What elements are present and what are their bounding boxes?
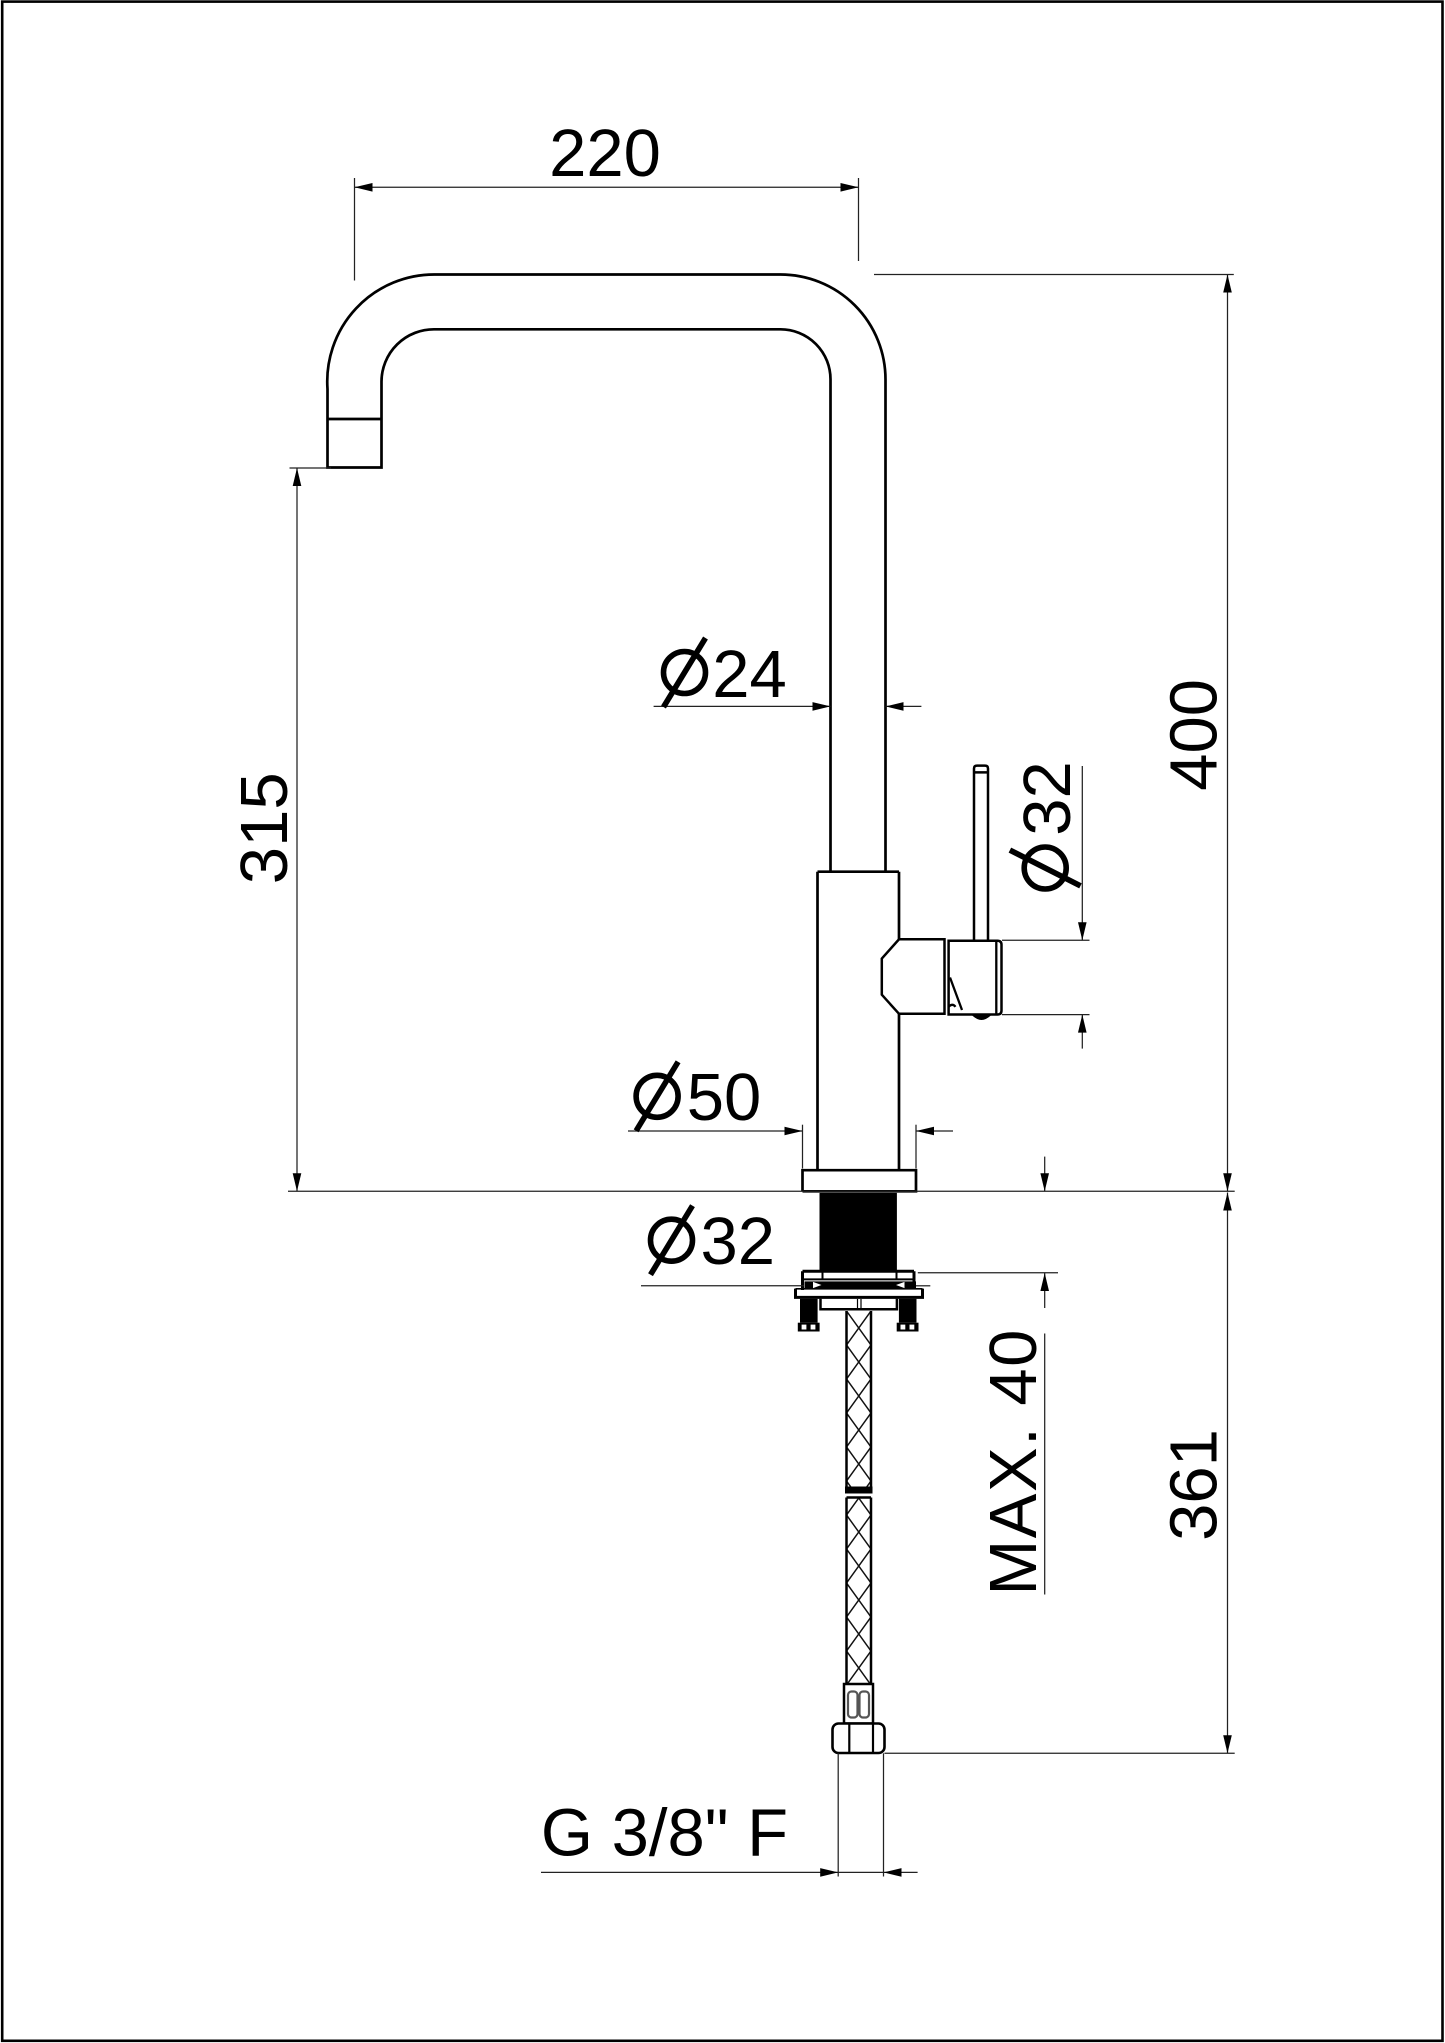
svg-text:32: 32 (701, 1204, 776, 1279)
svg-text:220: 220 (549, 116, 661, 191)
svg-text:MAX. 40: MAX. 40 (976, 1328, 1051, 1595)
svg-text:24: 24 (712, 637, 787, 712)
svg-text:361: 361 (1157, 1429, 1232, 1541)
svg-text:315: 315 (227, 772, 302, 884)
svg-text:50: 50 (687, 1060, 762, 1135)
svg-text:400: 400 (1157, 679, 1232, 791)
svg-text:32: 32 (1010, 761, 1085, 836)
svg-text:G 3/8" F: G 3/8" F (541, 1796, 788, 1871)
